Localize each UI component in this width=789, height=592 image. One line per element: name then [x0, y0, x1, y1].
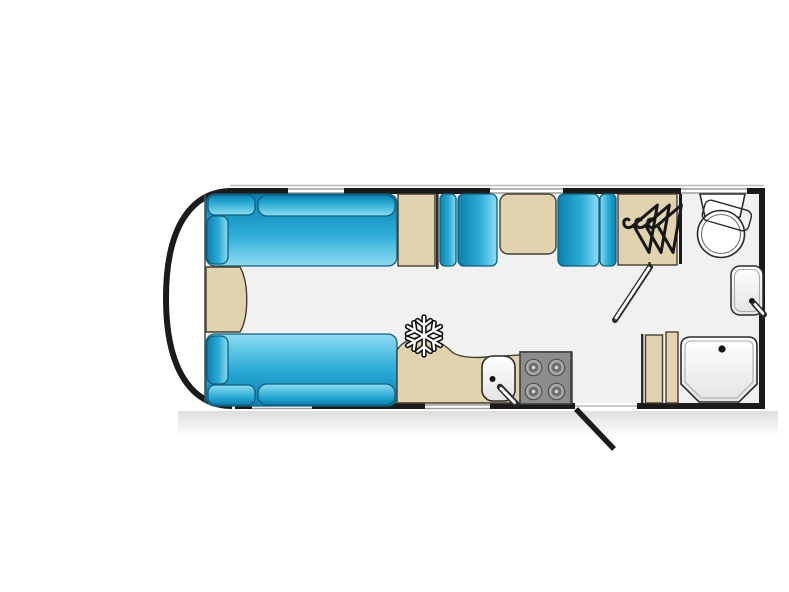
bottom-sofa-back-cushion	[208, 385, 255, 405]
top-wall-segment	[344, 188, 490, 194]
window-top-dinette	[490, 189, 563, 193]
top-wall-segment	[228, 188, 288, 194]
burner-icon	[548, 383, 564, 399]
burner-icon	[525, 383, 541, 399]
bottom-wall-segment	[637, 403, 765, 409]
burner-icon	[548, 359, 564, 375]
top-wall-segment	[563, 188, 681, 194]
dinette-table	[500, 194, 556, 254]
burner-icon	[525, 359, 541, 375]
floorplan-stage	[0, 0, 789, 592]
dinette-seat-right-bolster	[600, 194, 616, 266]
dinette-seat-right	[558, 194, 599, 266]
shower-tray	[681, 337, 757, 402]
top-sofa-back-cushion	[208, 195, 255, 215]
dinette-seat-left-bolster	[440, 194, 456, 266]
dinette-cabinet	[398, 194, 435, 266]
shower-cabinet-strip	[666, 332, 678, 403]
sink-tap-base	[490, 376, 496, 382]
basin	[731, 266, 764, 315]
shower-cabinet	[646, 335, 663, 403]
window-top-front	[288, 189, 344, 193]
top-sofa-back-cushion	[258, 195, 395, 216]
drain-icon	[718, 345, 725, 352]
ground-shadow	[178, 411, 778, 437]
partition-stub	[436, 194, 439, 269]
bottom-sofa-back-cushion	[258, 384, 395, 405]
washroom-partition	[679, 194, 682, 264]
dinette-seat-left	[458, 194, 497, 266]
top-sofa-armrest	[207, 216, 228, 264]
front-chest	[206, 267, 247, 332]
caravan-floorplan-drawing	[0, 0, 789, 592]
bottom-sofa-armrest	[207, 336, 228, 384]
window-bottom-kitchen	[425, 405, 490, 409]
window-top-washroom	[681, 189, 747, 193]
hob	[520, 352, 571, 404]
shower-wall-line	[641, 334, 643, 403]
